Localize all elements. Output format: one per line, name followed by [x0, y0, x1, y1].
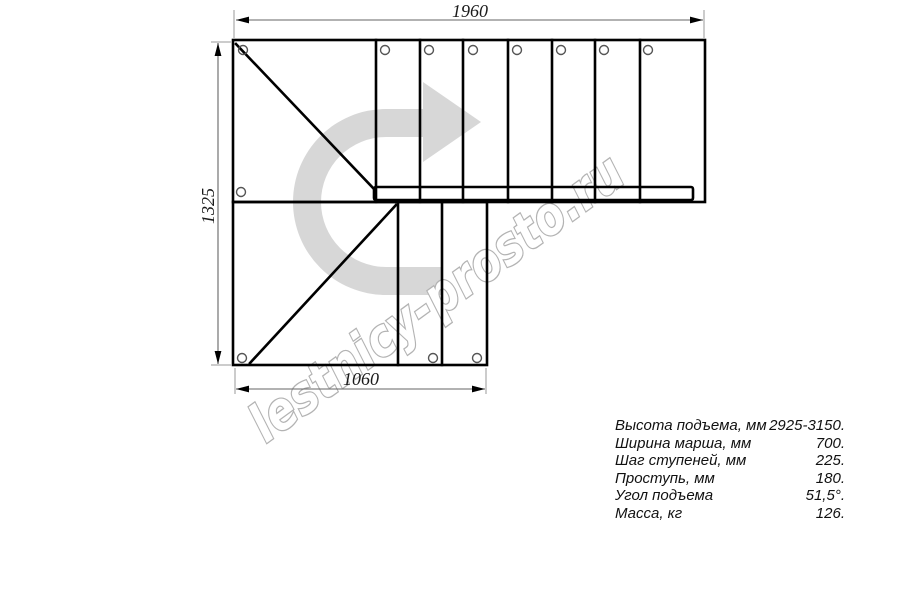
spec-row-tread: Проступь, мм 180. — [615, 470, 845, 488]
spec-value: 700. — [816, 435, 845, 453]
stair-drawing-page: lestnicy-prosto.ru 1960 1325 — [0, 0, 900, 600]
dimension-left-value: 1325 — [198, 188, 218, 224]
spec-value: 126. — [816, 505, 845, 523]
spec-row-height: Высота подъема, мм 2925-3150. — [615, 417, 845, 435]
spec-label: Высота подъема, мм — [615, 417, 767, 435]
dimension-top-value: 1960 — [452, 1, 488, 21]
spec-label: Масса, кг — [615, 505, 682, 523]
spec-value: 180. — [816, 470, 845, 488]
spec-label: Проступь, мм — [615, 470, 715, 488]
spec-label: Ширина марша, мм — [615, 435, 751, 453]
dimension-lines — [215, 17, 703, 393]
spec-row-flight-width: Ширина марша, мм 700. — [615, 435, 845, 453]
stair-outline — [233, 40, 705, 365]
specs-table: Высота подъема, мм 2925-3150. Ширина мар… — [615, 417, 845, 523]
spec-value: 225. — [816, 452, 845, 470]
spec-row-angle: Угол подъема 51,5°. — [615, 487, 845, 505]
spec-label: Шаг ступеней, мм — [615, 452, 746, 470]
spec-value: 2925-3150. — [769, 417, 845, 435]
dimension-bottom-value: 1060 — [343, 369, 379, 389]
spec-label: Угол подъема — [615, 487, 713, 505]
spec-row-step-pitch: Шаг ступеней, мм 225. — [615, 452, 845, 470]
spec-row-mass: Масса, кг 126. — [615, 505, 845, 523]
spec-value: 51,5°. — [806, 487, 845, 505]
